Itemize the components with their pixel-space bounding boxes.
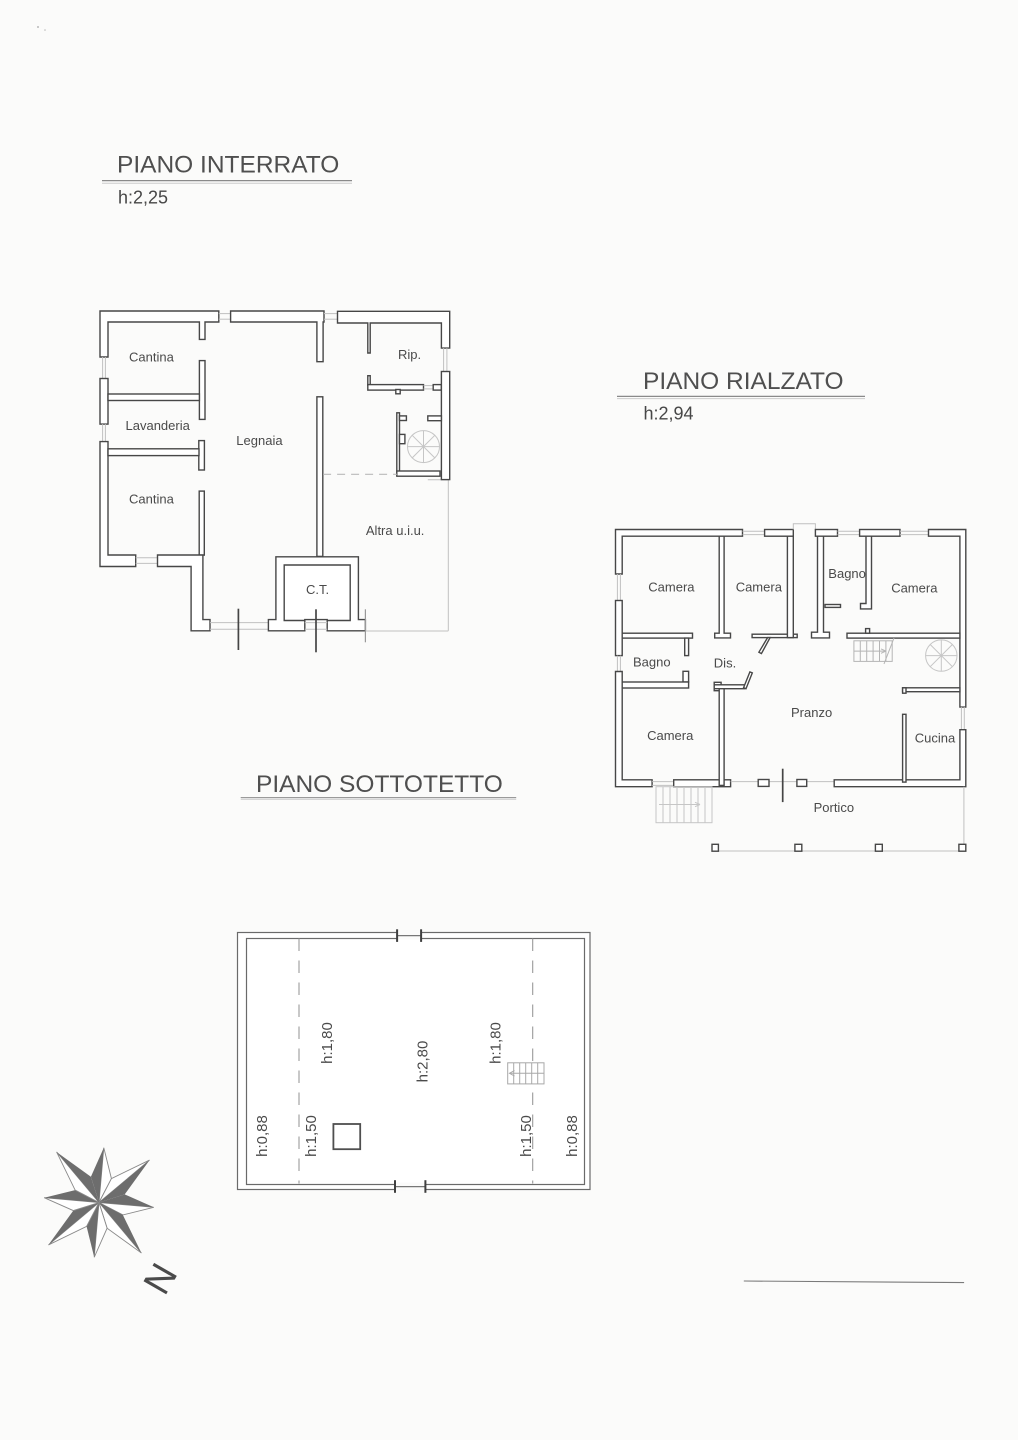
- svg-text:h:2,25: h:2,25: [118, 188, 168, 208]
- svg-text:h:2,80: h:2,80: [414, 1041, 431, 1083]
- svg-text:h:1,50: h:1,50: [518, 1115, 535, 1157]
- svg-text:Pranzo: Pranzo: [791, 705, 832, 720]
- svg-text:Rip.: Rip.: [398, 347, 421, 362]
- svg-text:Bagno: Bagno: [828, 566, 866, 581]
- svg-text:Camera: Camera: [647, 728, 694, 743]
- svg-text:Legnaia: Legnaia: [236, 433, 283, 448]
- svg-text:h:2,94: h:2,94: [644, 404, 694, 424]
- svg-text:C.T.: C.T.: [306, 582, 329, 597]
- svg-text:h:1,50: h:1,50: [303, 1115, 320, 1157]
- svg-text:PIANO INTERRATO: PIANO INTERRATO: [117, 152, 339, 179]
- svg-text:h:0,88: h:0,88: [254, 1115, 271, 1157]
- svg-text:Cantina: Cantina: [129, 350, 175, 365]
- svg-text:Dis.: Dis.: [714, 656, 736, 671]
- svg-text:Camera: Camera: [648, 580, 695, 595]
- svg-text:h:0,88: h:0,88: [564, 1115, 581, 1157]
- svg-text:Cantina: Cantina: [129, 492, 175, 507]
- svg-text:Portico: Portico: [814, 800, 854, 815]
- svg-text:Bagno: Bagno: [633, 654, 671, 669]
- svg-text:Lavanderia: Lavanderia: [126, 418, 191, 433]
- svg-text:PIANO SOTTOTETTO: PIANO SOTTOTETTO: [256, 771, 503, 798]
- svg-text:Camera: Camera: [736, 580, 783, 595]
- svg-text:h:1,80: h:1,80: [487, 1022, 504, 1064]
- svg-text:Cucina: Cucina: [915, 731, 956, 746]
- svg-text:PIANO RIALZATO: PIANO RIALZATO: [643, 368, 844, 395]
- svg-text:Camera: Camera: [891, 581, 938, 596]
- svg-text:Altra u.i.u.: Altra u.i.u.: [366, 523, 425, 538]
- svg-text:h:1,80: h:1,80: [319, 1022, 336, 1064]
